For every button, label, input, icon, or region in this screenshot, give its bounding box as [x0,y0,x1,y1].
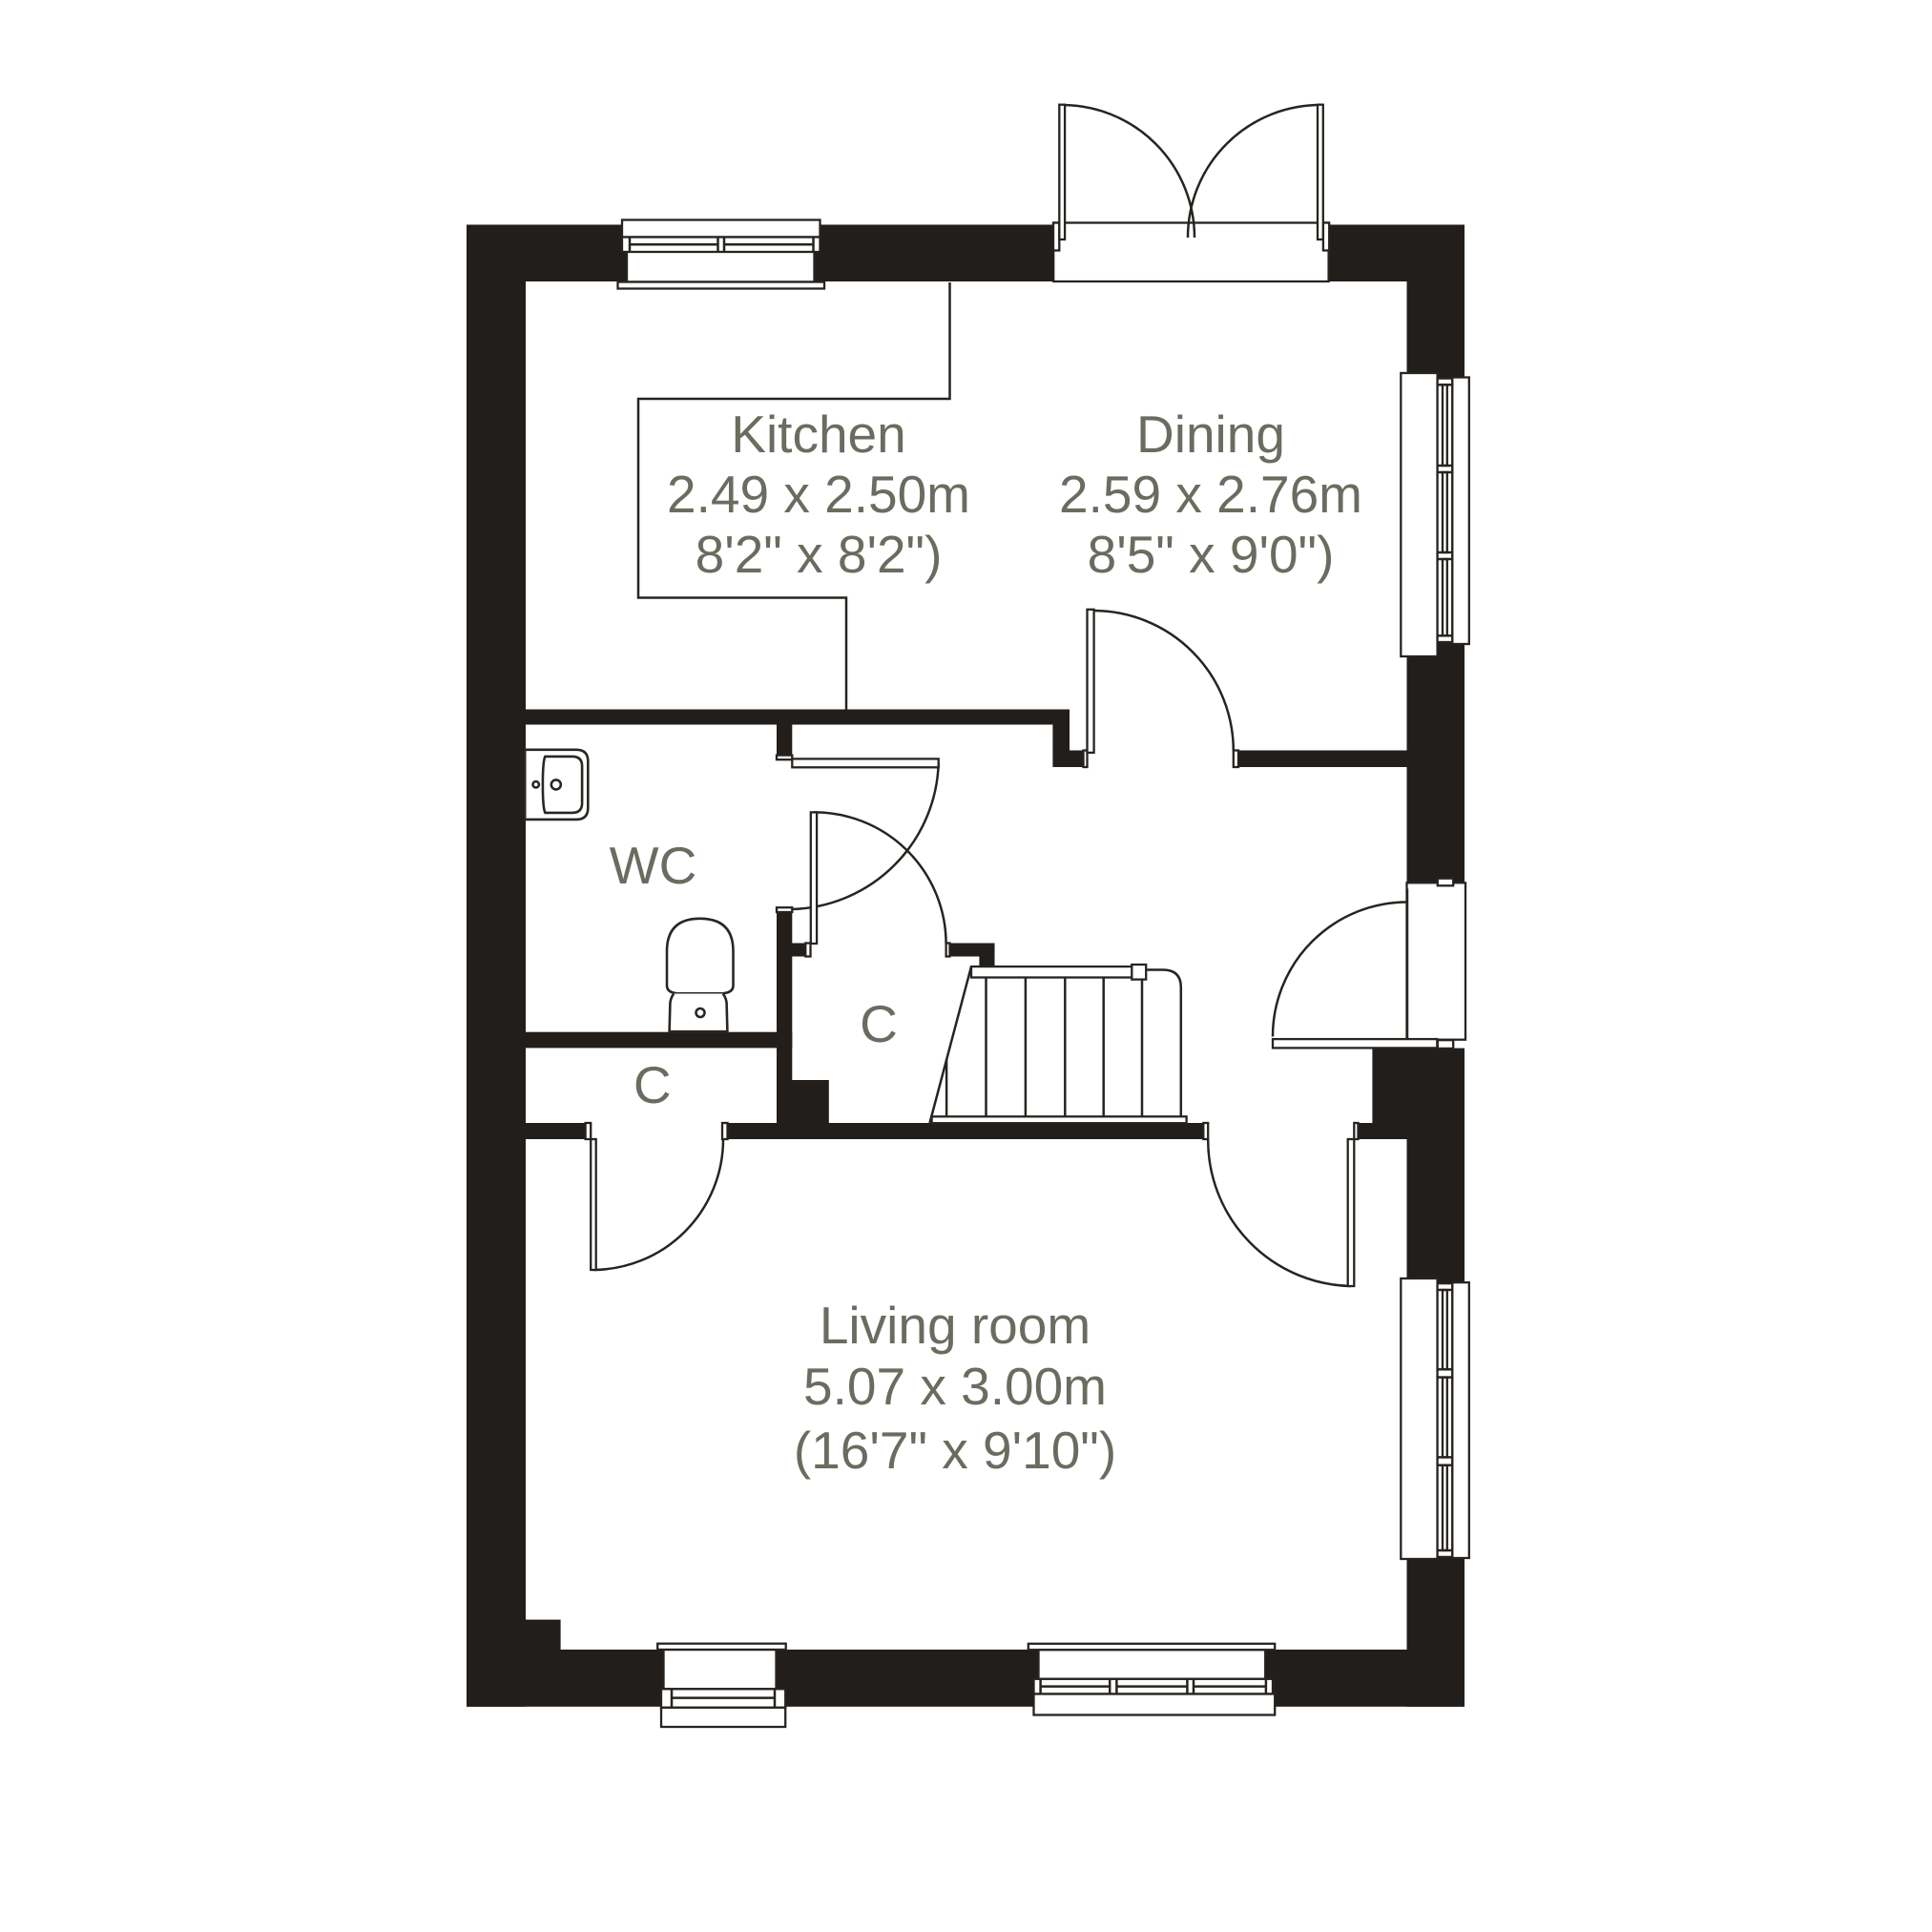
svg-text:2.59 x 2.76m: 2.59 x 2.76m [1059,465,1362,524]
svg-text:Dining: Dining [1136,405,1285,464]
svg-text:8'2" x 8'2"): 8'2" x 8'2") [696,525,943,584]
svg-text:C: C [634,1055,672,1114]
svg-text:8'5" x 9'0"): 8'5" x 9'0") [1088,525,1335,584]
svg-text:WC: WC [610,836,697,895]
svg-text:Kitchen: Kitchen [731,405,905,464]
svg-text:Living room: Living room [820,1296,1091,1355]
svg-text:C: C [860,994,898,1053]
svg-text:5.07 x 3.00m: 5.07 x 3.00m [803,1357,1107,1416]
svg-text:(16'7" x 9'10"): (16'7" x 9'10") [794,1421,1116,1480]
svg-text:2.49 x 2.50m: 2.49 x 2.50m [667,465,970,524]
